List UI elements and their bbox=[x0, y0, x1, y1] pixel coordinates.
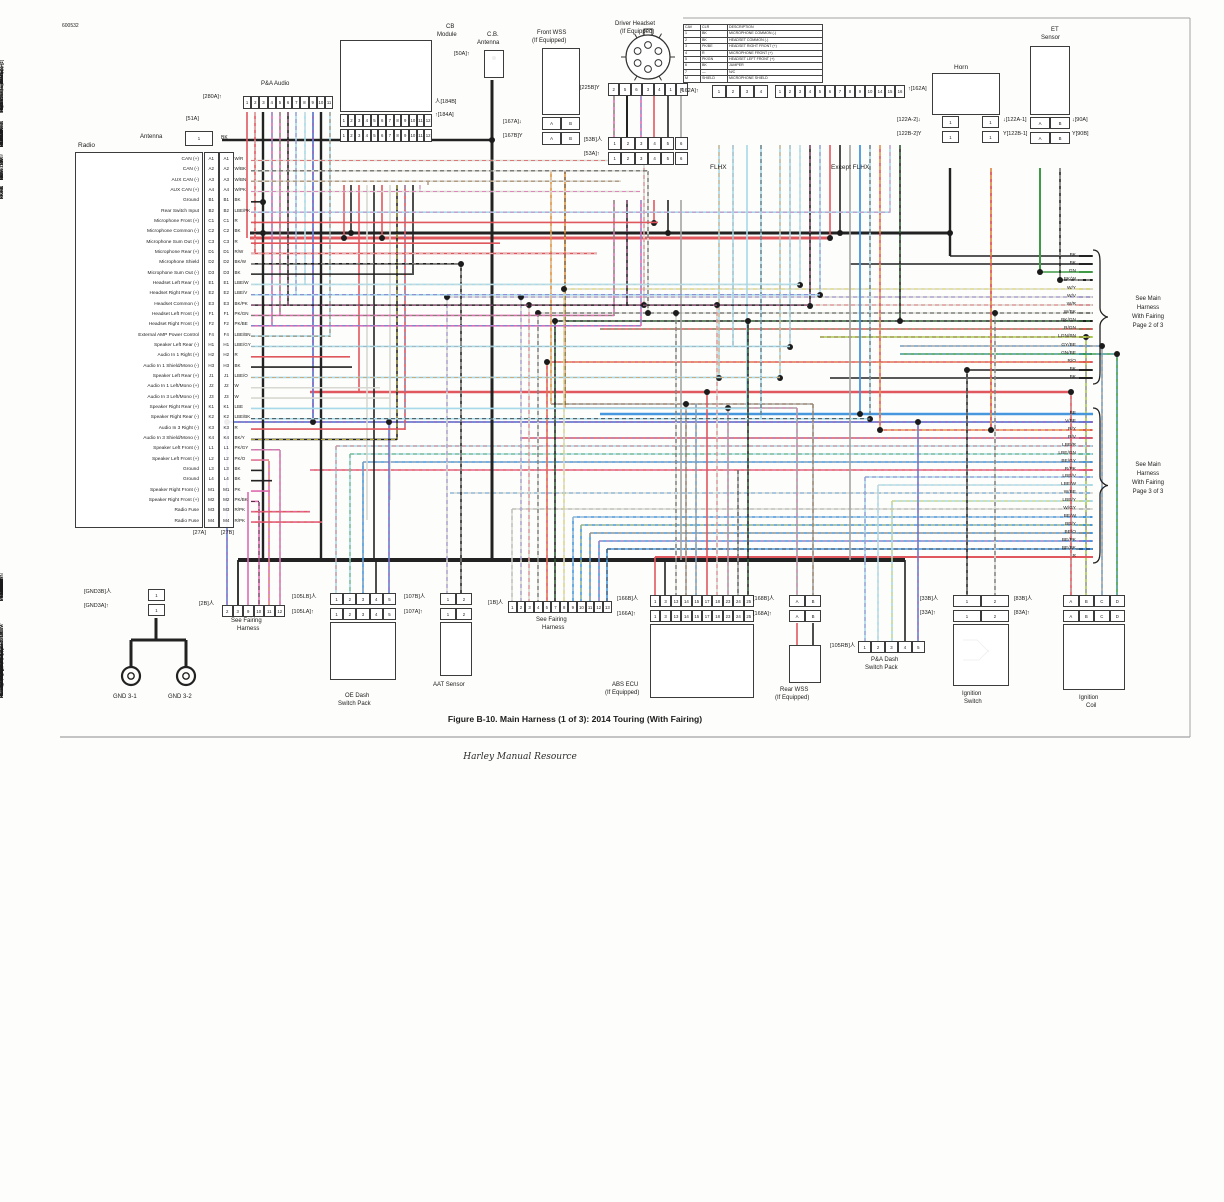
cb-antenna-pin-dot bbox=[492, 56, 496, 60]
junction-dot bbox=[1057, 277, 1063, 283]
junction-dot bbox=[552, 318, 558, 324]
junction-dot bbox=[544, 359, 550, 365]
headset-stub bbox=[659, 76, 662, 80]
junction-dot bbox=[386, 419, 392, 425]
junction-dot bbox=[877, 427, 883, 433]
ground-ring-hole bbox=[183, 673, 189, 679]
headset-stub bbox=[635, 76, 638, 80]
junction-dot bbox=[348, 230, 354, 236]
headset-stub bbox=[659, 34, 662, 38]
junction-dot bbox=[379, 235, 385, 241]
junction-dot bbox=[1068, 389, 1074, 395]
junction-dot bbox=[665, 230, 671, 236]
junction-dot bbox=[489, 137, 495, 143]
junction-dot bbox=[561, 286, 567, 292]
junction-dot bbox=[897, 318, 903, 324]
headset-connector-key bbox=[644, 29, 652, 35]
junction-dot bbox=[1037, 269, 1043, 275]
junction-dot bbox=[645, 310, 651, 316]
junction-dot bbox=[224, 419, 230, 425]
harness-brace bbox=[1093, 408, 1108, 563]
harness-brace bbox=[1093, 250, 1108, 384]
junction-dot bbox=[964, 367, 970, 373]
junction-dot bbox=[683, 401, 689, 407]
junction-dot bbox=[673, 310, 679, 316]
junction-dot bbox=[947, 230, 953, 236]
junction-dot bbox=[988, 427, 994, 433]
ground-ring-terminal bbox=[122, 667, 140, 685]
wiring-diagram-sheet: 1234567891011112345678910111212345678910… bbox=[0, 0, 1224, 1202]
ignition-switch-symbol bbox=[979, 650, 989, 660]
junction-dot bbox=[857, 411, 863, 417]
headset-stub bbox=[635, 34, 638, 38]
junction-dot bbox=[992, 310, 998, 316]
junction-dot bbox=[745, 318, 751, 324]
ground-ring-hole bbox=[128, 673, 134, 679]
junction-dot bbox=[915, 419, 921, 425]
junction-dot bbox=[837, 230, 843, 236]
junction-dot bbox=[1114, 351, 1120, 357]
junction-dot bbox=[310, 419, 316, 425]
junction-dot bbox=[827, 235, 833, 241]
junction-dot bbox=[807, 303, 813, 309]
ignition-switch-symbol bbox=[977, 640, 989, 652]
junction-dot bbox=[341, 235, 347, 241]
ground-ring-terminal bbox=[177, 667, 195, 685]
wire-layer bbox=[0, 0, 1224, 1202]
junction-dot bbox=[704, 389, 710, 395]
